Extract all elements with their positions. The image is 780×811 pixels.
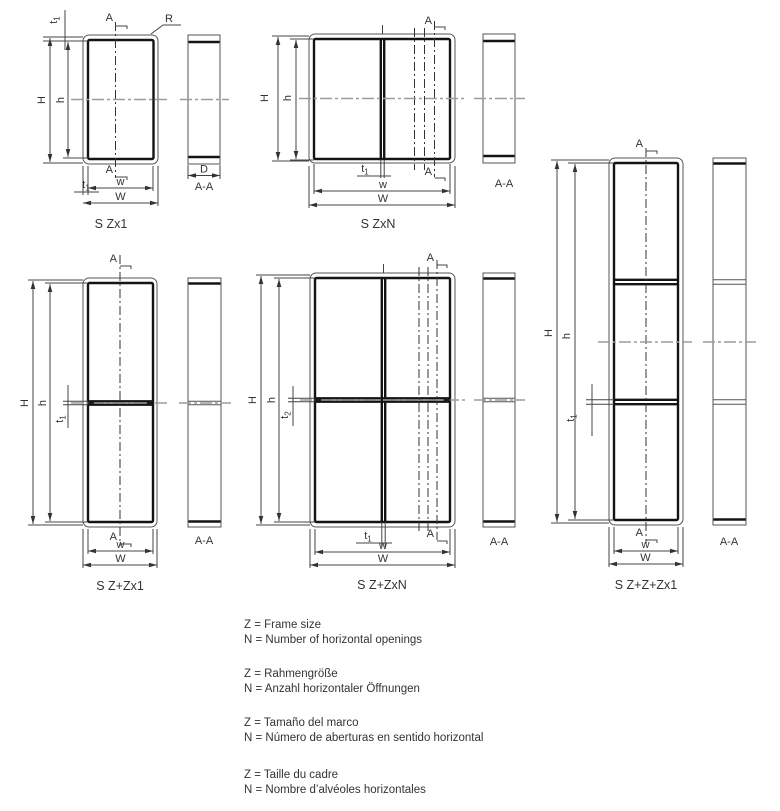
section-view-label: A-A — [490, 536, 509, 548]
dim-label-w: w — [378, 540, 387, 552]
radius-label: R — [165, 13, 173, 25]
dim-label-W: W — [378, 193, 389, 205]
front-view — [71, 255, 168, 546]
legend-line-z-fr: Z = Taille du cadre — [244, 768, 483, 783]
dim-label-h: h — [55, 97, 67, 103]
front-view — [299, 21, 465, 177]
dim-label-W: W — [115, 191, 126, 203]
section-view-label: A-A — [495, 178, 514, 190]
section-view-label: A-A — [720, 536, 739, 548]
technical-drawing-sheet: A A R H h t1 t1 w W — [0, 0, 780, 811]
section-label-bottom: A — [636, 527, 644, 539]
section-label-top: A — [106, 12, 114, 24]
front-view — [598, 148, 692, 544]
section-view: A-A — [703, 158, 756, 548]
dim-label-w: w — [378, 179, 387, 191]
section-view: A-A — [474, 273, 525, 548]
dimensions: A A H h t1 w W — [259, 15, 455, 208]
dim-label-D: D — [200, 164, 208, 176]
dim-label-H: H — [543, 329, 555, 337]
dim-label-w: w — [641, 539, 650, 551]
section-label-top: A — [110, 253, 118, 265]
dim-label-H: H — [247, 396, 259, 404]
front-view — [300, 260, 465, 540]
legend-line-n-es: N = Número de aberturas en sentido horiz… — [244, 731, 483, 746]
dim-label-t1: t1 — [361, 163, 369, 177]
dim-label-h: h — [266, 397, 278, 403]
legend-group-german: Z = Rahmengröße N = Anzahl horizontaler … — [244, 667, 483, 697]
dim-label-t1: t1 — [565, 414, 579, 422]
section-view: D A-A — [180, 35, 229, 193]
drawing-s-z-z-zx1: A A H h t1 w W — [543, 138, 756, 592]
drawing-title: S Z+Zx1 — [96, 579, 144, 593]
dim-label-W: W — [378, 553, 389, 565]
section-label-top: A — [636, 138, 644, 150]
drawing-s-zxn: A A H h t1 w W — [259, 15, 525, 231]
dim-label-H: H — [36, 96, 48, 104]
section-view-label: A-A — [195, 181, 214, 193]
legend-line-z-es: Z = Tamaño del marco — [244, 716, 483, 731]
section-view: A-A — [474, 34, 525, 190]
section-view-label: A-A — [195, 535, 214, 547]
front-view — [71, 22, 169, 178]
legend-group-french: Z = Taille du cadre N = Nombre d’alvéole… — [244, 768, 483, 798]
legend-line-n-de: N = Anzahl horizontaler Öffnungen — [244, 682, 483, 697]
dim-label-t1-top: t1 — [48, 16, 62, 24]
drawing-title: S Z+Z+Zx1 — [615, 578, 678, 592]
section-view: A-A — [179, 278, 231, 547]
section-label-top: A — [425, 15, 433, 27]
dim-label-t2: t2 — [279, 411, 293, 419]
drawing-title: S ZxN — [361, 217, 396, 231]
legend-line-z-en: Z = Frame size — [244, 618, 483, 633]
legend-line-n-en: N = Number of horizontal openings — [244, 633, 483, 648]
legend-line-z-de: Z = Rahmengröße — [244, 667, 483, 682]
legend: Z = Frame size N = Number of horizontal … — [244, 618, 483, 811]
dim-label-h: h — [561, 333, 573, 339]
dimensions: A A H h t2 t1 w W — [247, 252, 455, 568]
drawing-title: S Z+ZxN — [357, 578, 407, 592]
section-label-bottom: A — [427, 528, 435, 540]
section-label-bottom: A — [425, 166, 433, 178]
dim-label-t1: t1 — [54, 415, 68, 423]
dim-label-t1-bottom: t1 — [82, 179, 90, 193]
section-label-top: A — [427, 252, 435, 264]
legend-group-spanish: Z = Tamaño del marco N = Número de abert… — [244, 716, 483, 746]
dim-label-w: w — [116, 539, 125, 551]
dim-label-W: W — [115, 553, 126, 565]
dim-label-t1: t1 — [364, 530, 372, 544]
drawing-title: S Zx1 — [95, 217, 128, 231]
dim-label-W: W — [640, 552, 651, 564]
dim-label-h: h — [37, 400, 49, 406]
section-label-bottom: A — [106, 164, 114, 176]
dim-label-h: h — [282, 95, 294, 101]
dim-label-H: H — [259, 94, 271, 102]
dim-label-H: H — [19, 399, 31, 407]
drawing-s-z-zx1: A A H h t1 w W — [19, 253, 231, 593]
legend-line-n-fr: N = Nombre d’alvéoles horizontales — [244, 783, 483, 798]
legend-group-english: Z = Frame size N = Number of horizontal … — [244, 618, 483, 648]
drawing-s-z-zxn: A A H h t2 t1 w W — [247, 252, 525, 592]
drawing-s-zx1: A A R H h t1 t1 w W — [36, 10, 229, 231]
dim-label-w: w — [116, 176, 125, 188]
